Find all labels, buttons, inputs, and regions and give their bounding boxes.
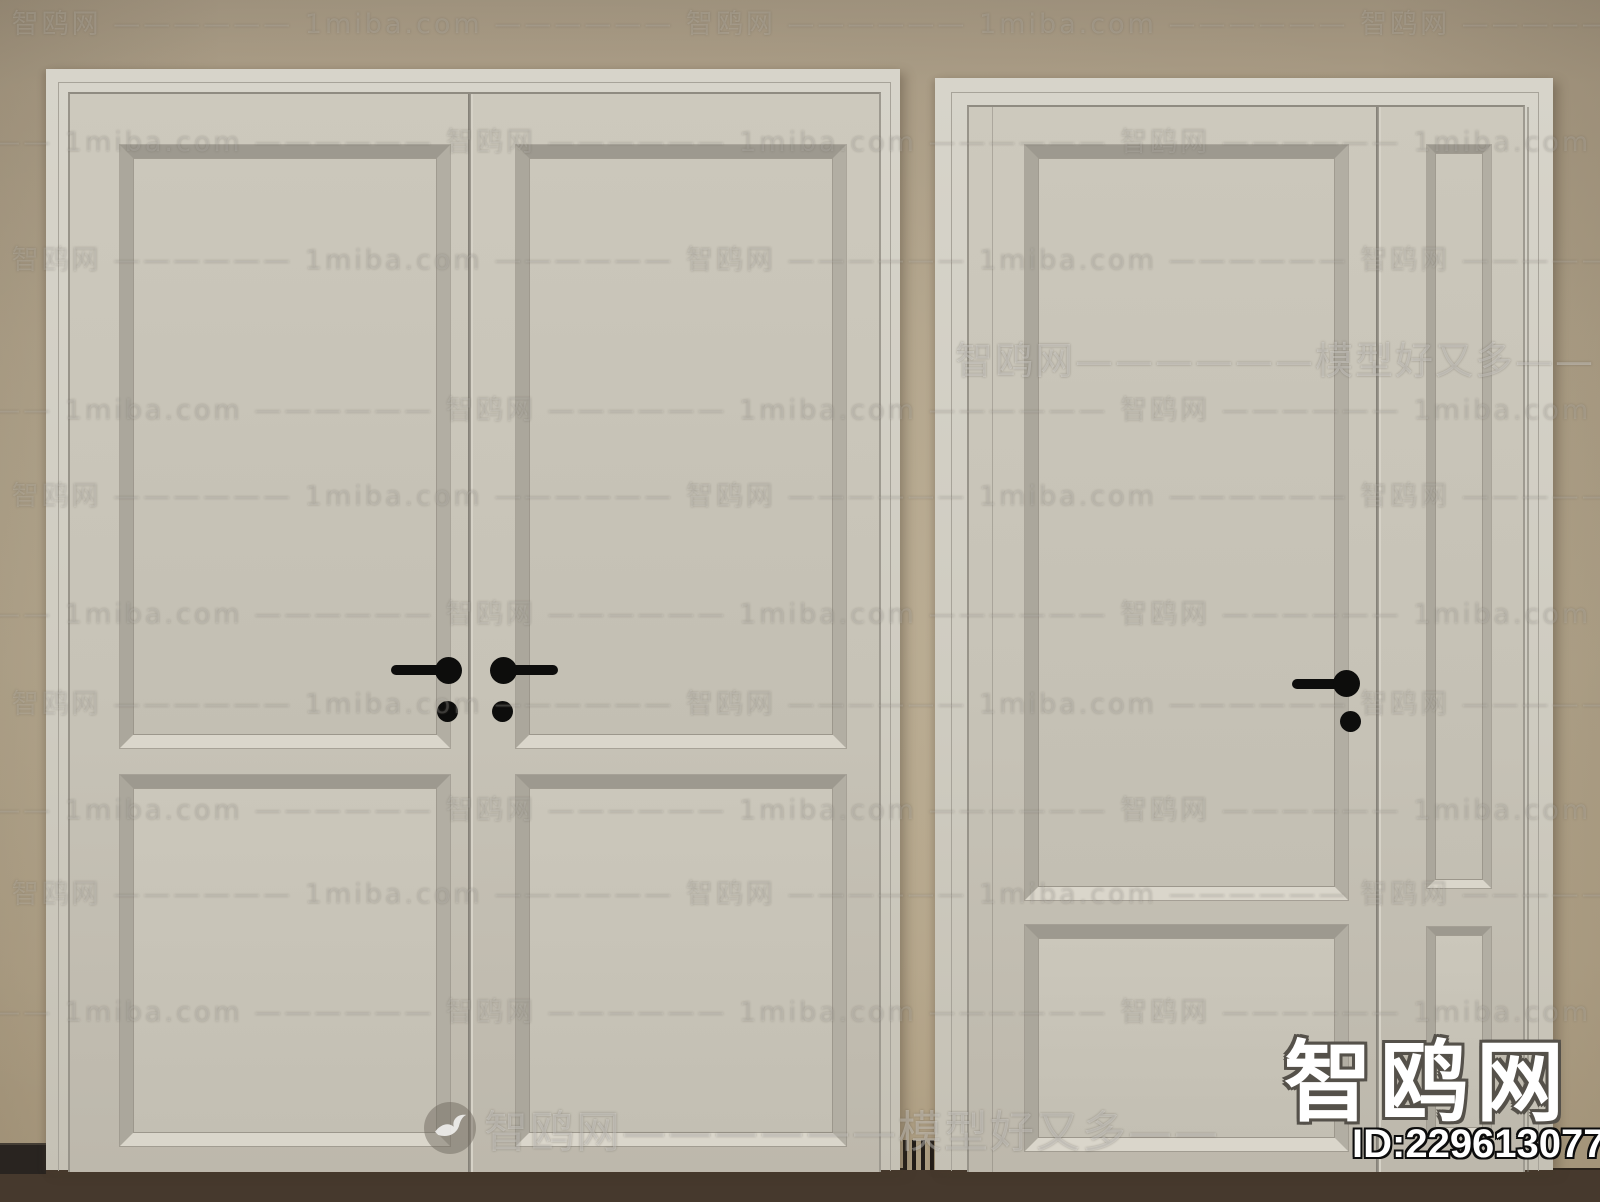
- sidelight-panel-upper: [1427, 145, 1491, 888]
- sidelight-panel-lower: [1427, 927, 1491, 1136]
- right-door-handle-rose: [490, 657, 517, 684]
- door-panel-lower-right: [516, 775, 846, 1146]
- left-door-lock-knob: [437, 701, 458, 722]
- door-panel-upper-right: [516, 145, 846, 748]
- door-panel-lower-left: [120, 775, 450, 1146]
- scene: —————— 智鸥网 —————— 1miba.com —————— 智鸥网 —…: [0, 0, 1600, 1202]
- hinge-reveal-line: [992, 107, 993, 1172]
- double-door-leaves: [68, 92, 881, 1172]
- baseboard-left: [0, 1143, 46, 1174]
- single-door-lock-knob: [1340, 711, 1361, 732]
- single-door-unit: [935, 78, 1553, 1170]
- door-leaf-gap-highlight: [471, 94, 473, 1172]
- jamb-reveal-line: [1527, 107, 1529, 1172]
- single-door-leaf-and-sidelight: [967, 105, 1525, 1172]
- wood-floor: [0, 1168, 1600, 1202]
- door-panel-upper-left: [120, 145, 450, 748]
- sidelight-divider-highlight: [1379, 107, 1381, 1172]
- door-panel-upper-main: [1025, 145, 1348, 900]
- right-door-lock-knob: [492, 701, 513, 722]
- double-door-unit: [46, 69, 900, 1170]
- door-panel-lower-main: [1025, 925, 1348, 1151]
- left-door-handle-rose: [435, 657, 462, 684]
- single-door-handle-rose: [1333, 670, 1360, 697]
